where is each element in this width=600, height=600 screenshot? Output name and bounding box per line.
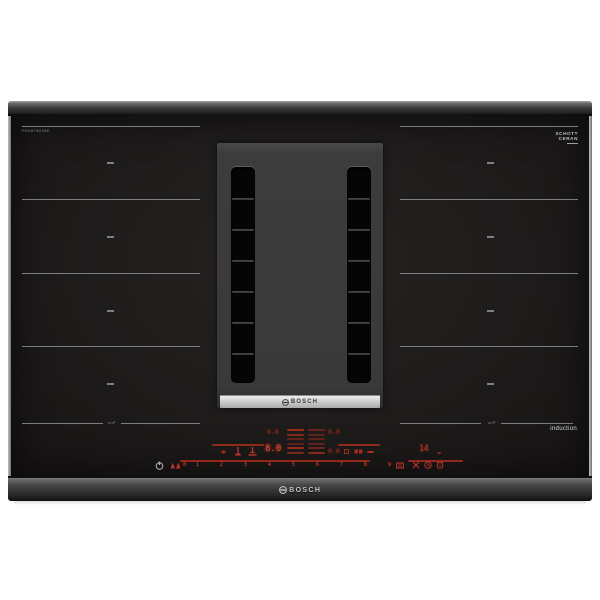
- zone-select-line: [338, 444, 380, 446]
- zone-dash: [487, 162, 494, 164]
- vent-level-bar: [308, 429, 325, 431]
- vent-brand-label: BOSCH: [291, 399, 318, 405]
- grille-slat: [348, 353, 370, 355]
- grille-slat: [348, 260, 370, 262]
- bosch-logo-icon: [279, 486, 287, 494]
- vent-level-bar: [287, 434, 304, 436]
- slider-dot: ·: [209, 462, 211, 468]
- zone-square-icon: [344, 449, 349, 454]
- minus-icon: [367, 451, 374, 453]
- alarm-icon: [436, 461, 444, 469]
- power-icon: [155, 461, 164, 470]
- grille-slat: [232, 291, 254, 293]
- display-power-level: 8.0: [265, 444, 281, 454]
- grille-slat: [232, 260, 254, 262]
- vent-level-bar: [287, 429, 304, 431]
- grille-slat: [348, 291, 370, 293]
- zone-line: [400, 423, 481, 424]
- zone-line: [22, 126, 200, 127]
- schott-underline: [567, 143, 578, 144]
- vent-grille-left: [231, 167, 255, 383]
- display-aux-mid-right: 0.0: [328, 447, 340, 455]
- slider-digit: 2: [220, 462, 223, 468]
- schott-ceran-logo: SCHOTT CERAN: [548, 131, 578, 144]
- grille-slat: [348, 229, 370, 231]
- zone-marking-right: vnP: [482, 421, 502, 425]
- vent-level-bar: [287, 438, 304, 440]
- vent-grille-right: [347, 167, 371, 383]
- zone-dash: [487, 383, 494, 385]
- vent-level-bar: [287, 452, 304, 454]
- display-aux-top-left: 0.0: [267, 428, 279, 436]
- bridge-zones-icon: [354, 449, 363, 454]
- slider-digit: 0: [183, 462, 186, 468]
- zone-line: [400, 346, 578, 347]
- grille-slat: [232, 353, 254, 355]
- slider-digit: 6: [316, 462, 319, 468]
- hob-left-trim: [8, 116, 11, 476]
- slider-dot: ·: [305, 462, 307, 468]
- product-photo: vnP vnP PXX875D34E SCHOTT CERAN inductio…: [0, 0, 600, 600]
- grille-slat: [348, 322, 370, 324]
- zone-dash: [107, 310, 114, 312]
- fan-icon: [234, 447, 242, 456]
- zone-line: [400, 126, 578, 127]
- slider-dot: ·: [257, 462, 259, 468]
- front-brand-label: BOSCH: [289, 487, 321, 494]
- grille-slat: [348, 198, 370, 200]
- zone-indicator-icon: [221, 450, 226, 454]
- grille-slat: [232, 198, 254, 200]
- timer-icon: [424, 461, 432, 469]
- zone-line: [400, 273, 578, 274]
- schott-line2: CERAN: [559, 136, 578, 141]
- zone-line: [22, 199, 200, 200]
- hob-front-trim: BOSCH: [8, 478, 592, 501]
- vent-level-bar: [308, 452, 325, 454]
- slider-digit: 5: [292, 462, 295, 468]
- zone-dash: [487, 310, 494, 312]
- slider-dot: ·: [329, 462, 331, 468]
- slider-dot: ·: [377, 462, 379, 468]
- display-timer: 14: [419, 444, 428, 454]
- slider-dot: ·: [353, 462, 355, 468]
- wipe-protection-icon: [412, 461, 420, 469]
- zone-dash: [107, 383, 114, 385]
- induction-label: induction: [540, 426, 577, 432]
- vent-level-bar: [308, 438, 325, 440]
- zone-line: [22, 423, 103, 424]
- bosch-logo-icon: [282, 399, 289, 406]
- slider-digit: 7: [340, 462, 343, 468]
- zone-line: [400, 199, 578, 200]
- vent-level-bar: [308, 434, 325, 436]
- slider-dot: ·: [233, 462, 235, 468]
- power-slider: 0 1 · 2 · 3 · 4 · 5 · 6 · 7 · 8 · 9: [183, 462, 391, 468]
- model-label: PXX875D34E: [22, 129, 50, 133]
- zone-line: [501, 423, 573, 424]
- zone-dash: [107, 162, 114, 164]
- display-aux-top-right: 0.0: [328, 428, 340, 436]
- slider-dot: ·: [281, 462, 283, 468]
- slider-digit: 9: [388, 462, 391, 468]
- grille-slat: [232, 229, 254, 231]
- vent-level-bar: [308, 443, 325, 445]
- slider-digit: 4: [268, 462, 271, 468]
- zone-dash: [487, 236, 494, 238]
- drop-shadow: [14, 500, 586, 505]
- zone-line: [121, 423, 200, 424]
- zone-dash: [107, 236, 114, 238]
- vent-module: BOSCH: [217, 143, 383, 408]
- vent-level-bar: [308, 447, 325, 449]
- pan-detect-icon: [396, 462, 404, 469]
- vent-link-icon: [170, 462, 181, 469]
- timer-dash: [437, 452, 441, 454]
- zone-line: [22, 346, 200, 347]
- slider-digit: 1: [196, 462, 199, 468]
- hood-icon: [248, 447, 257, 456]
- slider-digit: 8: [364, 462, 367, 468]
- hob-right-trim: [589, 116, 592, 476]
- grille-slat: [232, 322, 254, 324]
- zone-line: [22, 273, 200, 274]
- slider-digit: 3: [244, 462, 247, 468]
- zone-marking-left: vnP: [102, 421, 122, 425]
- hob-top-trim: [8, 101, 592, 114]
- vent-level-bar: [287, 447, 304, 449]
- vent-select-line: [212, 444, 264, 446]
- vent-level-bar: [287, 443, 304, 445]
- vent-brand-strip: BOSCH: [220, 395, 380, 408]
